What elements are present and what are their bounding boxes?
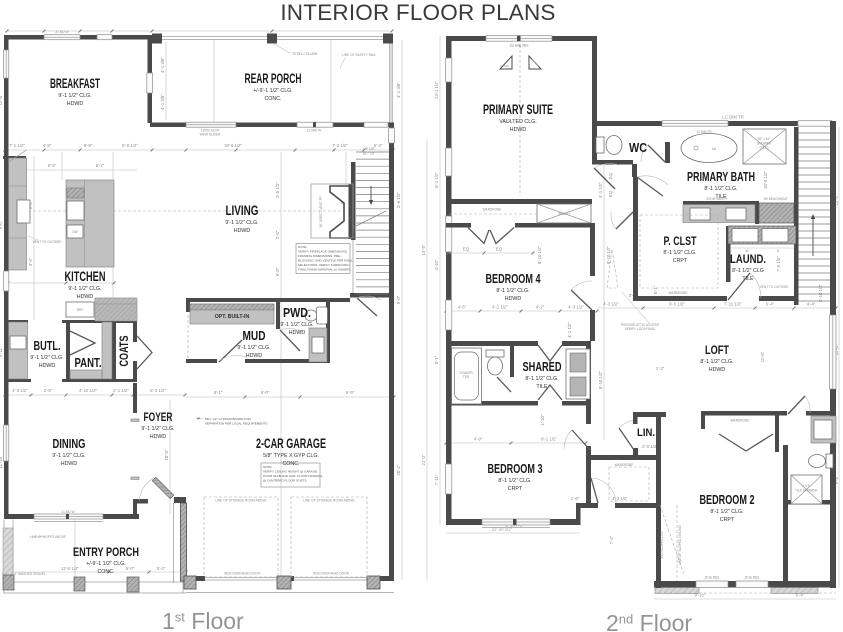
svg-text:VERIFY CEILING HEIGHT @ GARAGE: VERIFY CEILING HEIGHT @ GARAGE — [263, 470, 317, 474]
svg-text:FINAL FINISH MATERIAL w/ OWNER: FINAL FINISH MATERIAL w/ OWNER — [298, 268, 350, 272]
svg-text:4'-3 1/2": 4'-3 1/2" — [612, 496, 628, 501]
svg-text:4 x 3: 4 x 3 — [803, 484, 810, 488]
svg-text:9'-0": 9'-0" — [396, 295, 401, 304]
svg-text:FOYER: FOYER — [144, 410, 173, 424]
svg-text:BENCH: BENCH — [558, 212, 570, 216]
svg-text:6'-0": 6'-0" — [261, 390, 270, 395]
svg-text:BEDROOM 4: BEDROOM 4 — [486, 272, 541, 286]
svg-text:1'-6": 1'-6" — [571, 496, 580, 501]
svg-text:CRPT: CRPT — [673, 258, 688, 264]
svg-text:HDWD: HDWD — [150, 434, 167, 440]
svg-text:WC: WC — [629, 140, 647, 155]
svg-text:HDWD: HDWD — [39, 363, 56, 369]
svg-text:LOFT: LOFT — [705, 343, 730, 357]
svg-text:TILE SHOWER: TILE SHOWER — [795, 489, 818, 493]
svg-text:9'-1 1/2" CLG.: 9'-1 1/2" CLG. — [280, 322, 313, 328]
svg-text:5'-2": 5'-2" — [157, 566, 166, 571]
svg-text:REF: REF — [77, 308, 83, 312]
svg-text:8'-1 1/2" CLG.: 8'-1 1/2" CLG. — [496, 288, 529, 294]
svg-text:4'-4": 4'-4" — [807, 302, 816, 307]
svg-text:EQ: EQ — [608, 190, 613, 197]
svg-text:12 DIM TR: 12 DIM TR — [696, 130, 712, 134]
svg-text:6'-1 1/2": 6'-1 1/2" — [434, 172, 439, 188]
svg-text:LC DIM TR: LC DIM TR — [722, 115, 743, 120]
svg-text:LINE OF SLOPED CEILING: LINE OF SLOPED CEILING — [678, 525, 682, 565]
svg-text:7'-11 1/2": 7'-11 1/2" — [724, 302, 742, 307]
svg-text:4" WASHED GRAVEL: 4" WASHED GRAVEL — [14, 572, 45, 576]
svg-text:4'-3 1/2": 4'-3 1/2" — [568, 305, 584, 310]
svg-text:NOTE:: NOTE: — [298, 245, 307, 249]
svg-text:VENT TO OUTSIDE: VENT TO OUTSIDE — [760, 285, 789, 289]
svg-text:12'-6": 12'-6" — [0, 94, 3, 105]
svg-text:VERIFY LOCA FINAL: VERIFY LOCA FINAL — [625, 327, 656, 331]
svg-text:8'-1 1/2": 8'-1 1/2" — [541, 437, 557, 442]
svg-text:5'-2": 5'-2" — [96, 163, 105, 168]
svg-text:(TILE): (TILE) — [760, 146, 769, 150]
svg-text:BUTL.: BUTL. — [34, 339, 61, 353]
svg-text:9'-1 1/2" CLG.: 9'-1 1/2" CLG. — [225, 220, 258, 226]
svg-text:W/ BENCHSEAT: W/ BENCHSEAT — [764, 197, 788, 201]
svg-text:LIVING: LIVING — [226, 203, 259, 218]
svg-text:7'-2": 7'-2" — [609, 535, 614, 544]
svg-text:W16 OVERHEAD DOOR: W16 OVERHEAD DOOR — [313, 572, 349, 576]
svg-text:LINE OF STORAGE ROOM ABOVE: LINE OF STORAGE ROOM ABOVE — [303, 499, 354, 503]
svg-text:BLOCKING, AND VENTING PER FINA: BLOCKING, AND VENTING PER FINAL — [298, 259, 353, 263]
svg-text:OPT. BUILT-IN: OPT. BUILT-IN — [215, 314, 250, 320]
svg-text:13'-1 1/2": 13'-1 1/2" — [434, 80, 439, 99]
svg-text:5'-9 1/2": 5'-9 1/2" — [122, 143, 138, 148]
svg-text:REAR PORCH: REAR PORCH — [245, 71, 302, 86]
svg-text:LIN.: LIN. — [637, 427, 655, 439]
svg-text:9'-0": 9'-0" — [0, 220, 3, 229]
svg-text:HDWD: HDWD — [246, 353, 263, 359]
svg-text:9'-1 1/2" CLG.: 9'-1 1/2" CLG. — [52, 453, 85, 459]
svg-text:DINING: DINING — [53, 436, 86, 451]
svg-text:7'-11": 7'-11" — [434, 474, 439, 485]
svg-text:PRIMARY SUITE: PRIMARY SUITE — [483, 102, 553, 117]
svg-text:2'-6 RO: 2'-6 RO — [745, 575, 760, 580]
svg-text:5'-3 1/2": 5'-3 1/2" — [150, 388, 166, 393]
svg-text:VERIFY FIREPLACE DIMENSIONS,: VERIFY FIREPLACE DIMENSIONS, — [298, 250, 348, 254]
svg-text:12 MID W: 12 MID W — [307, 129, 321, 133]
svg-text:2'-6": 2'-6" — [275, 230, 280, 239]
svg-text:4:12 SLOPED CLG: 4:12 SLOPED CLG — [660, 531, 664, 559]
svg-text:LINE OF SOFFIT ABOVE: LINE OF SOFFIT ABOVE — [30, 535, 66, 539]
svg-text:4'-1 1/2": 4'-1 1/2" — [598, 182, 603, 198]
svg-text:4'-1 3/8": 4'-1 3/8" — [396, 82, 401, 98]
svg-text:20'-2": 20'-2" — [396, 464, 401, 475]
svg-text:WARDROBE: WARDROBE — [483, 208, 502, 212]
svg-text:HDWD: HDWD — [67, 101, 84, 107]
svg-text:5'-11": 5'-11" — [0, 346, 3, 357]
svg-text:BREAKFAST: BREAKFAST — [50, 75, 100, 91]
svg-text:4'-10": 4'-10" — [434, 259, 439, 270]
svg-text:11'-10": 11'-10" — [0, 455, 3, 468]
svg-text:DW: DW — [72, 230, 77, 234]
svg-text:4'-3 1/2": 4'-3 1/2" — [603, 302, 619, 307]
svg-text:8'-1 1/2" CLG.: 8'-1 1/2" CLG. — [525, 376, 558, 382]
svg-text:8'-1 1/2" CLG.: 8'-1 1/2" CLG. — [710, 509, 743, 515]
svg-text:SEPARATION PER LOCAL REQUIREME: SEPARATION PER LOCAL REQUIREMENTS — [205, 422, 267, 426]
svg-text:9'-1 1/2" CLG.: 9'-1 1/2" CLG. — [30, 355, 63, 361]
svg-text:INTERIOR FLOOR PLANS: INTERIOR FLOOR PLANS — [280, 0, 555, 25]
svg-text:9'-1 1/2" CLG.: 9'-1 1/2" CLG. — [141, 426, 174, 432]
svg-text:PANT.: PANT. — [75, 356, 102, 370]
svg-text:ENTRY PORCH: ENTRY PORCH — [73, 545, 139, 559]
svg-text:4'-9": 4'-9" — [474, 437, 483, 442]
svg-text:TUB: TUB — [463, 375, 469, 379]
svg-text:TILE: TILE — [715, 194, 727, 200]
svg-text:VENT TO OUTSIDE: VENT TO OUTSIDE — [33, 240, 62, 244]
svg-text:PRIMARY BATH: PRIMARY BATH — [687, 169, 755, 184]
svg-text:21'-0": 21'-0" — [421, 454, 426, 465]
svg-text:CRPT: CRPT — [720, 517, 735, 523]
svg-text:5'-4": 5'-4" — [766, 302, 775, 307]
svg-text:CONC.: CONC. — [282, 461, 299, 467]
svg-text:UP 16R: UP 16R — [363, 147, 375, 151]
svg-text:7'-1 1/2": 7'-1 1/2" — [9, 143, 25, 148]
svg-text:KITCHEN: KITCHEN — [65, 269, 106, 284]
svg-text:DOOR SLAB AND GAR. FLOOR FRAMI: DOOR SLAB AND GAR. FLOOR FRAMING — [263, 474, 323, 478]
svg-text:9'-9": 9'-9" — [84, 143, 93, 148]
svg-text:12'-0 1/2": 12'-0 1/2" — [61, 566, 80, 571]
svg-text:5'-10 1/2": 5'-10 1/2" — [818, 283, 823, 302]
svg-text:6'-0": 6'-0" — [126, 566, 135, 571]
svg-text:PWD.: PWD. — [283, 306, 311, 320]
svg-text:HDWD: HDWD — [77, 294, 94, 300]
svg-text:HDWD: HDWD — [510, 127, 527, 133]
svg-text:CRPT: CRPT — [508, 486, 523, 492]
svg-text:2'-1 1/2": 2'-1 1/2" — [113, 388, 129, 393]
svg-text:2-CAR GARAGE: 2-CAR GARAGE — [256, 436, 326, 451]
svg-text:+/-9'-1 1/2" CLG.: +/-9'-1 1/2" CLG. — [253, 88, 293, 94]
svg-text:36" DIRECT VENT FP: 36" DIRECT VENT FP — [319, 196, 323, 228]
svg-text:COATS: COATS — [119, 335, 131, 366]
svg-text:4'-1 3/8": 4'-1 3/8" — [160, 57, 165, 73]
svg-text:WARDROBE: WARDROBE — [669, 291, 688, 295]
svg-text:4'-5": 4'-5" — [458, 305, 467, 310]
svg-text:8'-10 1/2": 8'-10 1/2" — [537, 245, 542, 264]
svg-text:1st Floor: 1st Floor — [162, 608, 244, 632]
svg-text:4'-8": 4'-8" — [43, 143, 52, 148]
svg-text:6'-0": 6'-0" — [275, 267, 280, 276]
svg-text:18'-6 1/2": 18'-6 1/2" — [224, 143, 243, 148]
svg-text:LAUND.: LAUND. — [730, 252, 766, 266]
svg-text:4'-3 1/2": 4'-3 1/2" — [12, 388, 28, 393]
svg-text:10'-5": 10'-5" — [164, 449, 169, 460]
svg-text:P. CLST: P. CLST — [664, 234, 697, 248]
svg-text:HDWD: HDWD — [234, 228, 251, 234]
svg-text:SHOWER: SHOWER — [757, 142, 772, 146]
svg-text:HDWD: HDWD — [61, 461, 78, 467]
svg-text:WARDROBE: WARDROBE — [615, 463, 634, 467]
svg-text:4'-1 3/8": 4'-1 3/8" — [160, 94, 165, 110]
svg-text:2'-8": 2'-8" — [44, 388, 53, 393]
svg-text:WDW SLIDER: WDW SLIDER — [200, 133, 221, 137]
svg-text:4'-10 1/2": 4'-10 1/2" — [79, 388, 98, 393]
svg-text:VAULTED CLG.: VAULTED CLG. — [499, 119, 536, 125]
svg-text:6'-9": 6'-9" — [346, 390, 355, 395]
svg-text:2'-6 RO: 2'-6 RO — [705, 575, 720, 580]
svg-text:TILE: TILE — [536, 384, 548, 390]
svg-text:36" x 42": 36" x 42" — [758, 137, 771, 141]
svg-text:13'-5": 13'-5" — [421, 244, 426, 255]
svg-text:BEDROOM 2: BEDROOM 2 — [700, 493, 755, 507]
svg-text:4'-1 1/2": 4'-1 1/2" — [492, 305, 508, 310]
svg-text:8'-1 1/2" CLG.: 8'-1 1/2" CLG. — [704, 186, 737, 192]
svg-text:10'-5 1/2": 10'-5 1/2" — [763, 170, 768, 189]
svg-text:8'-1": 8'-1" — [214, 390, 223, 395]
svg-text:SHARED: SHARED — [523, 360, 562, 374]
svg-text:EQ: EQ — [496, 247, 503, 252]
svg-text:CONC.: CONC. — [97, 569, 114, 575]
svg-text:6'-5": 6'-5" — [48, 163, 57, 168]
svg-text:BEDROOM 3: BEDROOM 3 — [488, 462, 543, 476]
svg-text:SELECTIONS. VERIFY SURROUND /: SELECTIONS. VERIFY SURROUND / — [298, 263, 350, 267]
svg-text:5/8" TYPE X GYP CLG.: 5/8" TYPE X GYP CLG. — [263, 453, 319, 459]
svg-text:MUD: MUD — [243, 329, 266, 343]
svg-text:8'-1 1/2" CLG.: 8'-1 1/2" CLG. — [700, 359, 733, 365]
svg-text:HDWD: HDWD — [709, 367, 726, 373]
svg-text:6'-1": 6'-1" — [653, 285, 658, 294]
svg-text:6'-3": 6'-3" — [374, 143, 383, 148]
svg-text:8'-10 1/2": 8'-10 1/2" — [598, 370, 603, 389]
svg-text:TILE: TILE — [742, 276, 754, 282]
svg-text:11'-6": 11'-6" — [760, 351, 765, 362]
svg-text:21 MU W: 21 MU W — [61, 510, 74, 514]
svg-text:+/-9'-1 1/2" CLG.: +/-9'-1 1/2" CLG. — [86, 561, 126, 567]
svg-text:W16 OVERHEAD DOOR: W16 OVERHEAD DOOR — [224, 572, 260, 576]
svg-text:EQ: EQ — [463, 247, 470, 252]
svg-text:9'-1 1/2" CLG.: 9'-1 1/2" CLG. — [68, 286, 101, 292]
svg-text:HDWD: HDWD — [505, 296, 522, 302]
svg-text:9'-1 1/2" CLG.: 9'-1 1/2" CLG. — [58, 93, 91, 99]
svg-text:8'-1 1/2" CLG: 8'-1 1/2" CLG — [732, 268, 764, 274]
svg-text:9'-1 1/2" CLG.: 9'-1 1/2" CLG. — [237, 345, 270, 351]
svg-text:7'-9 1/2": 7'-9 1/2" — [776, 256, 781, 272]
svg-text:NOTE:: NOTE: — [263, 465, 272, 469]
svg-text:4'-1 1/2": 4'-1 1/2" — [567, 322, 572, 338]
svg-text:8'-1": 8'-1" — [434, 355, 439, 364]
svg-text:7'-2 1/2": 7'-2 1/2" — [332, 143, 348, 148]
svg-text:1'-3": 1'-3" — [656, 366, 665, 371]
svg-text:8'-1 1/2" CLG.: 8'-1 1/2" CLG. — [498, 478, 531, 484]
svg-text:9'-5 1/2": 9'-5 1/2" — [669, 302, 685, 307]
svg-text:1'-10": 1'-10" — [540, 414, 545, 425]
svg-text:FRAMING DIMENSIONS, PRE-: FRAMING DIMENSIONS, PRE- — [298, 254, 341, 258]
svg-text:2x M6 RH: 2x M6 RH — [509, 43, 528, 48]
svg-text:@ 7 7/8": @ 7 7/8" — [363, 152, 375, 156]
svg-text:2'-6 1/2": 2'-6 1/2" — [642, 444, 658, 449]
svg-text:HDWD: HDWD — [289, 330, 306, 336]
svg-text:2'-5 1/2": 2'-5 1/2" — [275, 182, 280, 198]
svg-text:LINE OF STORAGE ROOM ABOVE: LINE OF STORAGE ROOM ABOVE — [215, 499, 266, 503]
svg-text:21 MU W: 21 MU W — [55, 30, 68, 34]
svg-text:WARDROBE: WARDROBE — [731, 419, 750, 423]
svg-text:tub: tub — [712, 147, 717, 151]
svg-text:MIN. 1/2" GYPSUM BOARD FOR: MIN. 1/2" GYPSUM BOARD FOR — [205, 417, 251, 421]
svg-text:8'-1 1/2" CLG.: 8'-1 1/2" CLG. — [663, 250, 696, 256]
svg-text:2'-6 1/2": 2'-6 1/2" — [396, 192, 401, 208]
svg-text:CONC.: CONC. — [264, 96, 281, 102]
svg-text:STEEL COLUMN: STEEL COLUMN — [293, 52, 318, 56]
svg-text:EQ: EQ — [608, 172, 613, 179]
svg-text:4'-2": 4'-2" — [536, 305, 545, 310]
svg-text:@ CANTERED FLOOR JOISTS: @ CANTERED FLOOR JOISTS — [263, 479, 307, 483]
svg-text:3'-6": 3'-6" — [28, 257, 33, 266]
svg-text:LINE OF SAFETY RAIL: LINE OF SAFETY RAIL — [342, 53, 376, 57]
